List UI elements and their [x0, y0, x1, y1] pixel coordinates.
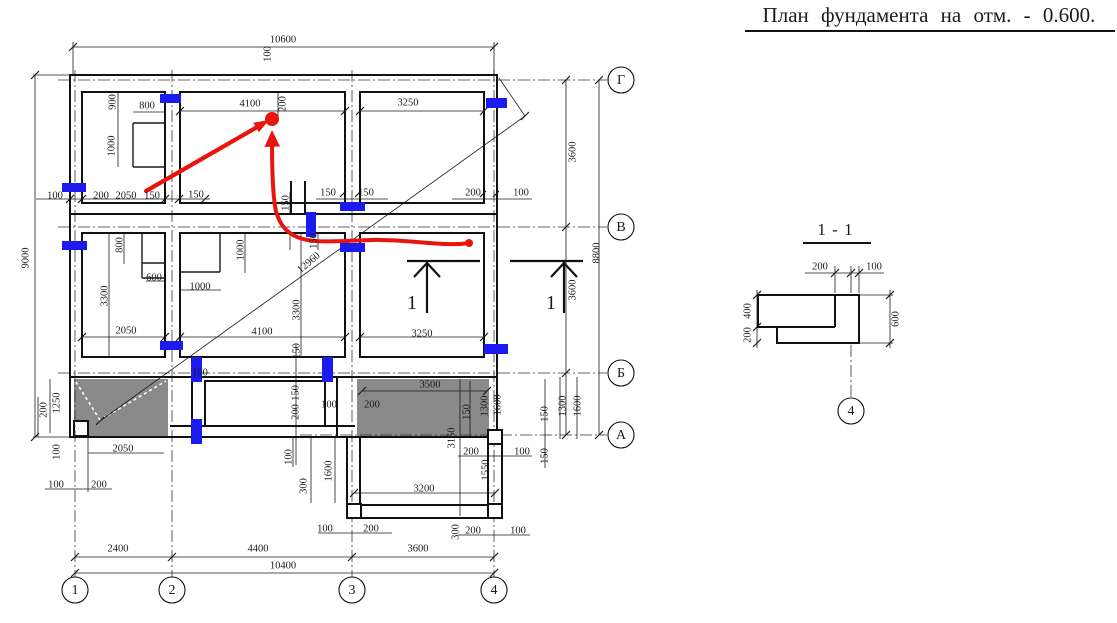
- dim-label: 3250: [412, 329, 433, 340]
- dim-label: 3300: [100, 286, 111, 307]
- dim-label: 1000: [107, 136, 118, 157]
- dim-label: 150: [462, 404, 473, 420]
- dim-label: 900: [108, 94, 119, 110]
- dim-label: 100: [47, 191, 63, 202]
- porch-post: [74, 421, 88, 436]
- dim-label: 100: [317, 524, 333, 535]
- blue-mark: [160, 341, 183, 350]
- dim-label: 2050: [113, 444, 134, 455]
- dim-label: 200: [812, 262, 828, 273]
- dim-label: 150: [281, 195, 292, 211]
- page-title: План фундамента на отм. - 0.600.: [763, 3, 1096, 27]
- dim-label: 1300: [558, 396, 569, 417]
- dim-label: 200: [291, 404, 302, 420]
- dim-label: 800: [115, 237, 126, 253]
- blue-mark: [340, 243, 365, 252]
- dim-label: 8800: [592, 243, 603, 264]
- blue-mark: [340, 202, 365, 211]
- dim-label: 4100: [240, 99, 261, 110]
- dim-label: 200: [743, 327, 754, 343]
- dim-label: 150: [309, 233, 320, 249]
- dim-label: 400: [743, 303, 754, 319]
- blue-mark: [62, 241, 87, 250]
- dim-label: 200: [465, 188, 481, 199]
- red-arrow-line: [146, 126, 259, 191]
- dim-label: 150: [540, 406, 551, 422]
- dim-label: 150: [144, 191, 160, 202]
- section-detail: [758, 243, 871, 343]
- dim-label: 4100: [252, 327, 273, 338]
- dim-label: 800: [139, 101, 155, 112]
- dim-label: 200: [91, 480, 107, 491]
- dim-label: 100: [514, 447, 530, 458]
- dim-label: 150: [188, 190, 204, 201]
- blue-mark: [62, 183, 86, 192]
- dim-label: 10600: [270, 35, 296, 46]
- section-marker-label: 1: [546, 292, 556, 314]
- red-curve-end-dot: [465, 239, 473, 247]
- dim-label: 200: [39, 402, 50, 418]
- dim-label: 9000: [21, 248, 32, 269]
- dim-label: 3250: [398, 98, 419, 109]
- dim-label: 300: [451, 524, 462, 540]
- dim-label: 150: [540, 448, 551, 464]
- dim-label: 1250: [52, 393, 63, 414]
- dim-label: 150: [291, 385, 302, 401]
- dim-label: 3150: [447, 428, 458, 449]
- blue-mark: [191, 419, 202, 444]
- blue-mark: [484, 344, 508, 354]
- dimension-labels-group: 1060010090080041002003250100010020020501…: [21, 35, 902, 572]
- dim-label: 100: [192, 368, 208, 379]
- axis-4-label: 4: [491, 583, 498, 598]
- dim-label: 2050: [116, 326, 137, 337]
- dim-label: 300: [299, 478, 310, 494]
- dim-label: 1550: [481, 460, 492, 481]
- section-detail-title: 1 - 1: [817, 220, 852, 239]
- drawing-canvas: 1060010090080041002003250100010020020501…: [0, 0, 1117, 623]
- axis-А-label: А: [616, 428, 627, 443]
- axis-Г-label: Г: [617, 73, 625, 88]
- dim-label: 200: [93, 191, 109, 202]
- dim-label: 3300: [292, 300, 303, 321]
- dim-label: 3600: [568, 142, 579, 163]
- red-curve-arrowhead: [265, 130, 281, 147]
- dim-label: 3600: [568, 280, 579, 301]
- axis-3-label: 3: [349, 583, 356, 598]
- blue-mark: [322, 357, 333, 382]
- dim-label: 3600: [408, 544, 429, 555]
- section-cut-markers: [407, 261, 583, 313]
- dim-label: 200: [463, 447, 479, 458]
- dim-label: 1600: [573, 396, 584, 417]
- axis-1-label: 1: [72, 583, 79, 598]
- section-marker-labels: 11: [407, 292, 556, 314]
- dim-label: 1000: [236, 240, 247, 261]
- dim-label: 12960: [295, 250, 322, 275]
- dim-label: 4400: [248, 544, 269, 555]
- dim-label: 1600: [493, 395, 504, 416]
- dim-label: 100: [52, 444, 63, 460]
- axis-grid-lines: [58, 70, 851, 577]
- dim-label: 150: [320, 188, 336, 199]
- section-axis-4-label: 4: [848, 404, 855, 419]
- blue-mark: [160, 94, 181, 103]
- section-marker-label: 1: [407, 292, 417, 314]
- dim-label: 1000: [190, 282, 211, 293]
- dim-label: 100: [321, 400, 337, 411]
- axis-В-label: В: [616, 220, 625, 235]
- dim-label: 200: [278, 96, 289, 112]
- dim-label: 200: [363, 524, 379, 535]
- foundation-plan-svg: 1060010090080041002003250100010020020501…: [0, 0, 1117, 623]
- dim-label: 2050: [116, 191, 137, 202]
- axis-Б-label: Б: [617, 366, 625, 381]
- dim-label: 100: [284, 449, 295, 465]
- dim-label: 150: [358, 188, 374, 199]
- dim-label: 100: [263, 46, 274, 62]
- dim-label: 100: [510, 526, 526, 537]
- dim-label: 600: [146, 273, 162, 284]
- dim-label: 100: [866, 262, 882, 273]
- red-dot: [265, 112, 279, 126]
- dim-label: 150: [292, 343, 303, 359]
- dim-label: 1600: [324, 461, 335, 482]
- axis-2-label: 2: [169, 583, 176, 598]
- dim-label: 3500: [420, 380, 441, 391]
- dim-label: 600: [891, 311, 902, 327]
- dim-label: 200: [364, 400, 380, 411]
- dimension-lines: [33, 42, 893, 573]
- dim-label: 3200: [414, 484, 435, 495]
- dim-label: 1300: [480, 396, 491, 417]
- dim-label: 10400: [270, 561, 296, 572]
- dim-label: 100: [48, 480, 64, 491]
- dim-label: 200: [465, 526, 481, 537]
- dim-label: 2400: [108, 544, 129, 555]
- dim-label: 100: [513, 188, 529, 199]
- blue-mark: [486, 98, 507, 108]
